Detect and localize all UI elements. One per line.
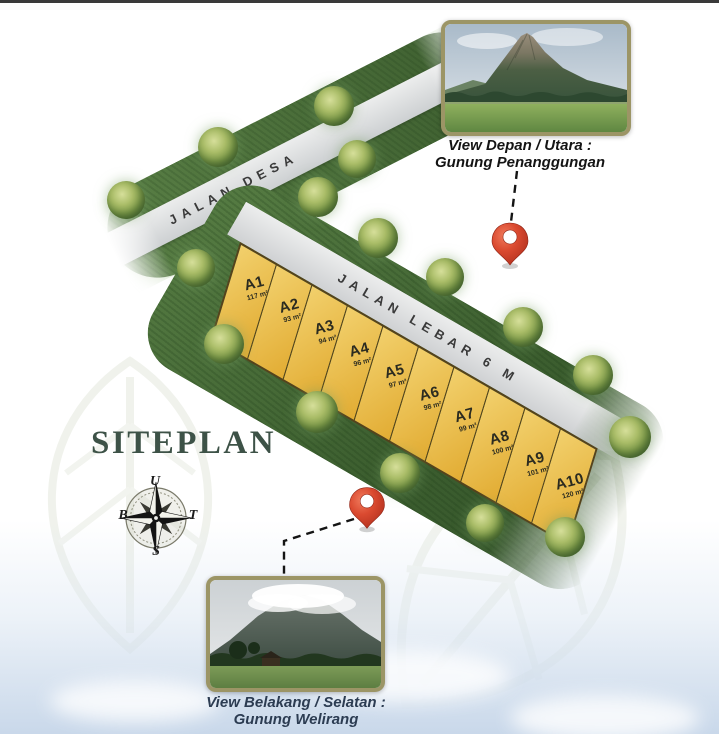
page-title: SITEPLAN xyxy=(91,425,276,462)
tree-icon xyxy=(204,324,244,364)
map-pin-north-icon xyxy=(492,223,528,269)
compass-east-label: T xyxy=(185,508,201,524)
caption-south-line1: View Belakang / Selatan : xyxy=(163,694,429,711)
caption-north-line2: Gunung Penanggungan xyxy=(395,154,645,171)
tree-icon xyxy=(573,355,613,395)
caption-view-north: View Depan / Utara : Gunung Penanggungan xyxy=(395,137,645,171)
tree-icon xyxy=(358,218,398,258)
tree-icon xyxy=(314,86,354,126)
photo-gunung-penanggungan xyxy=(441,20,631,136)
tree-icon xyxy=(466,504,504,542)
tree-icon xyxy=(296,391,338,433)
caption-north-line1: View Depan / Utara : xyxy=(395,137,645,154)
mountain-photo-south xyxy=(210,580,381,688)
tree-icon xyxy=(338,140,376,178)
compass-rose: U T S B xyxy=(103,470,207,566)
cloud-shape xyxy=(510,695,700,734)
tree-icon xyxy=(426,258,464,296)
top-border xyxy=(0,0,719,3)
caption-south-line2: Gunung Welirang xyxy=(163,711,429,728)
tree-icon xyxy=(545,517,585,557)
tree-icon xyxy=(177,249,215,287)
siteplan-poster: JALAN DESA JALAN LEBAR 6 M A1117 m²A293 … xyxy=(0,0,719,734)
tree-icon xyxy=(609,416,651,458)
compass-north-label: U xyxy=(147,474,163,490)
tree-icon xyxy=(107,181,145,219)
mountain-photo-north xyxy=(445,24,627,132)
photo-gunung-welirang xyxy=(206,576,385,692)
dashed-line-north xyxy=(511,171,517,222)
tree-icon xyxy=(298,177,338,217)
tree-icon xyxy=(380,453,420,493)
tree-icon xyxy=(198,127,238,167)
caption-view-south: View Belakang / Selatan : Gunung Weliran… xyxy=(163,694,429,728)
compass-west-label: B xyxy=(115,508,131,524)
tree-icon xyxy=(503,307,543,347)
compass-south-label: S xyxy=(148,544,164,560)
